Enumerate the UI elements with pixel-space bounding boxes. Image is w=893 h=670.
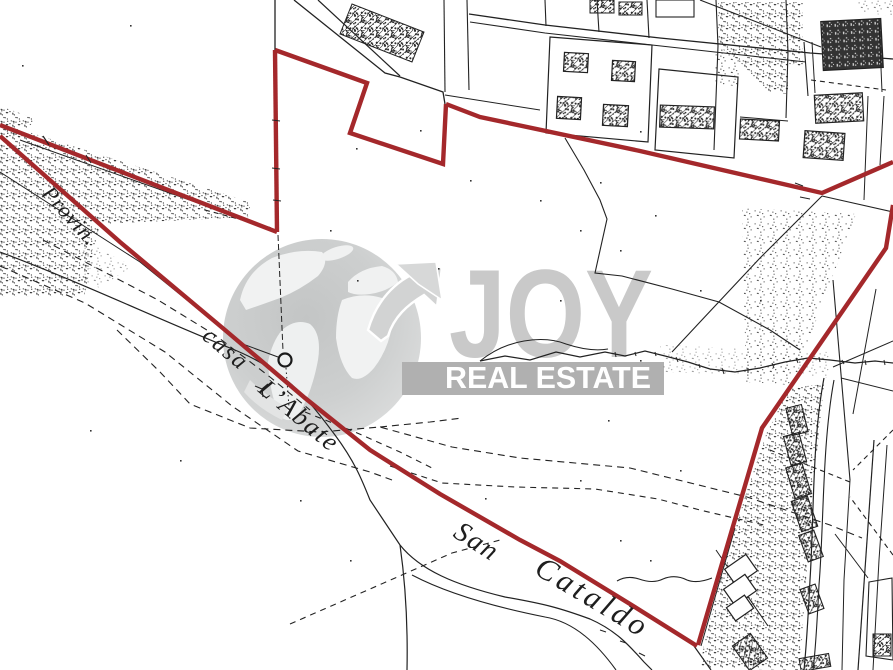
svg-text:REAL ESTATE: REAL ESTATE	[445, 360, 651, 395]
